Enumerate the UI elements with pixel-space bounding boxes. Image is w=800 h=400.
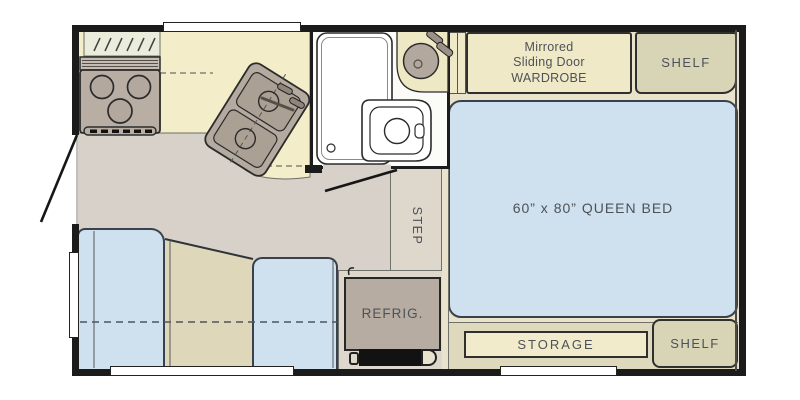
wall-right — [739, 25, 746, 376]
floorplan-canvas: Mirrored Sliding Door WARDROBE SHELF 60”… — [0, 0, 800, 400]
wall-left-3 — [72, 336, 79, 376]
refrigerator-hook — [349, 268, 354, 275]
bathroom-wall-stub — [305, 165, 322, 173]
window-bottom-right — [500, 366, 617, 376]
entry-door — [41, 135, 77, 224]
wall-left-1 — [72, 25, 79, 135]
window-top — [163, 22, 301, 32]
stove — [80, 57, 160, 135]
window-bottom-left — [110, 366, 294, 376]
dinette-slope-line — [165, 239, 253, 259]
wall-bottom-2 — [292, 369, 502, 376]
wall-top-left — [72, 25, 165, 32]
bathroom-door-opening — [323, 165, 391, 171]
fixtures-layer — [0, 0, 800, 400]
wall-top-right — [299, 25, 746, 32]
wall-bottom-3 — [615, 369, 746, 376]
bathroom — [305, 29, 454, 191]
wall-right-inner-line — [735, 30, 737, 371]
toilet — [362, 100, 431, 161]
window-left — [69, 252, 79, 338]
bathroom-door-swing — [325, 170, 397, 191]
entry-door-swing — [41, 135, 77, 222]
dinette-cushion-lines — [94, 231, 333, 368]
wall-left-2 — [72, 224, 79, 254]
dish-drainer — [84, 31, 160, 56]
